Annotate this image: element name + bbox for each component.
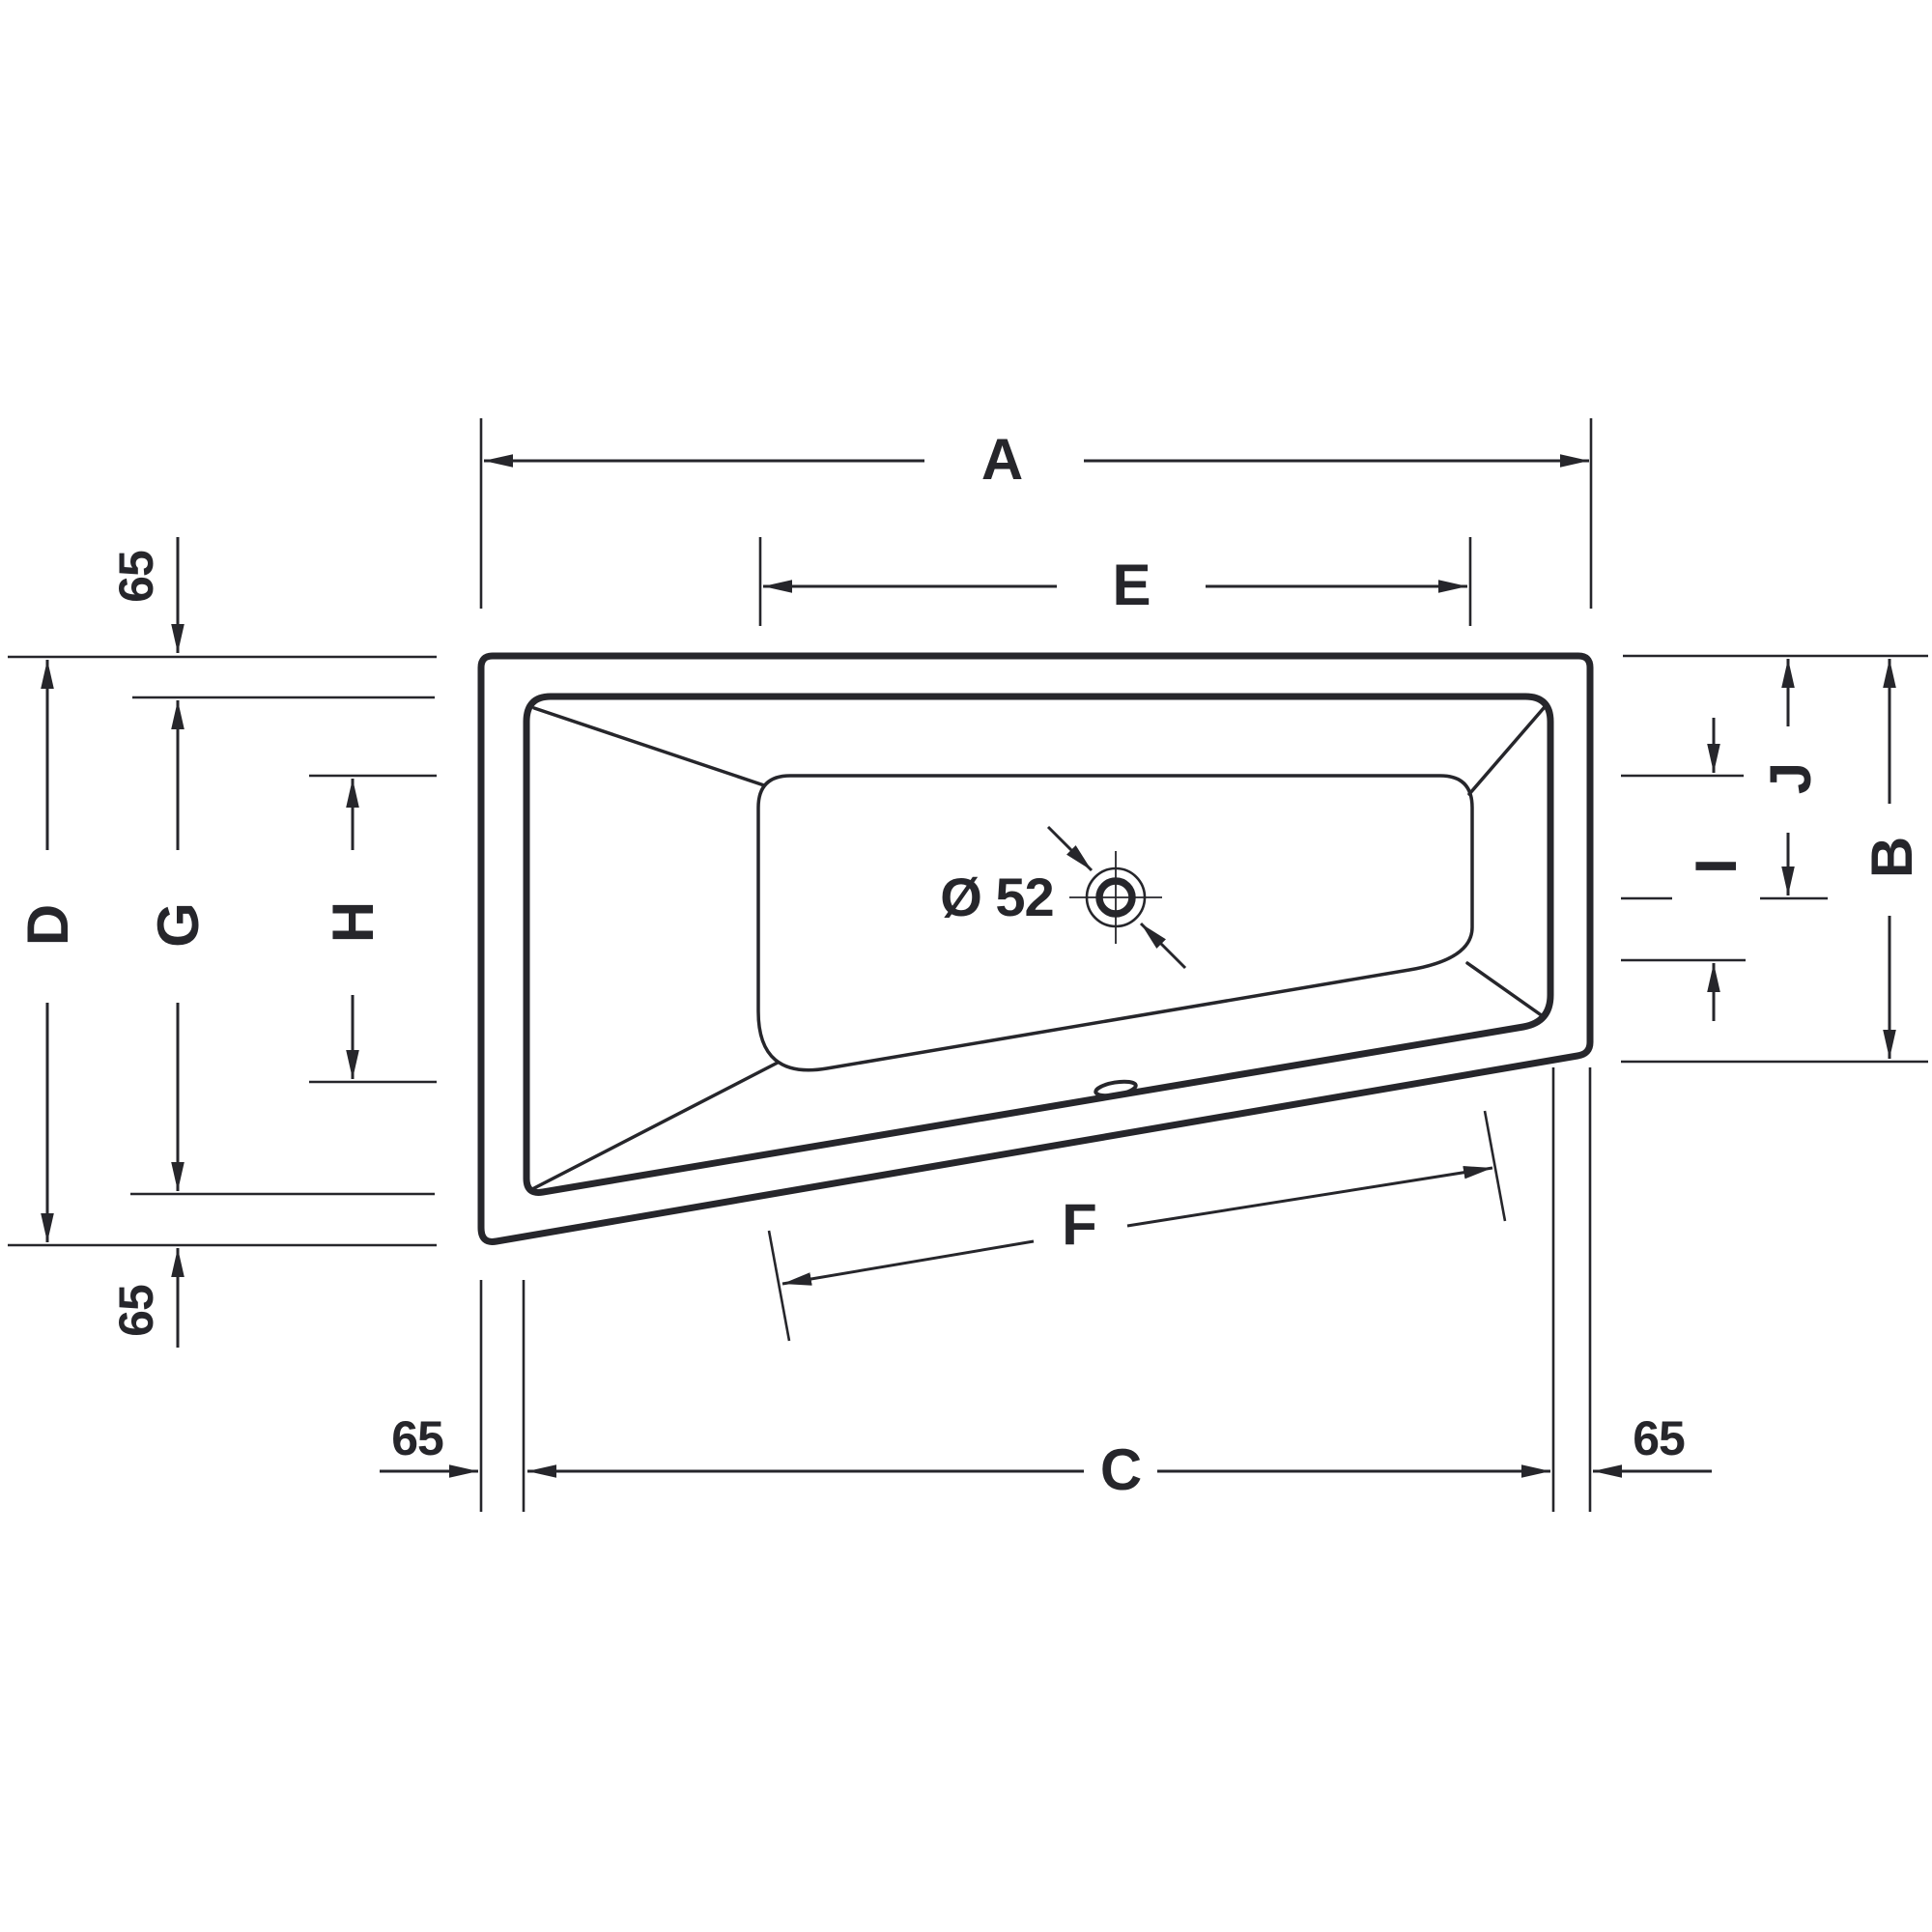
drain-group: [1048, 827, 1185, 968]
wall-diagonal-bottom-right: [1467, 963, 1543, 1016]
bathtub-dimension-svg: A E C F 65 65 Ø 52 65 65 D G H J I B: [0, 0, 1932, 1932]
label-J: J: [1758, 763, 1823, 794]
label-I: I: [1684, 859, 1748, 874]
wall-diagonal-top-right: [1469, 708, 1544, 794]
tub-outlines: [481, 656, 1590, 1241]
dimension-labels: A E C F 65 65 Ø 52 65 65 D G H J I B: [15, 427, 1924, 1502]
drain-leader-arrow-upper: [1048, 827, 1092, 870]
label-65-bottom-left-h: 65: [391, 1411, 443, 1465]
label-65-bottom-left: 65: [109, 1285, 163, 1337]
label-A: A: [981, 427, 1022, 492]
label-G: G: [146, 903, 211, 948]
label-H: H: [321, 902, 385, 943]
label-C: C: [1100, 1437, 1141, 1502]
drain-leader-arrow-lower: [1141, 923, 1185, 968]
label-65-top-left: 65: [109, 551, 163, 603]
label-drain-diameter: Ø 52: [940, 867, 1053, 927]
label-B: B: [1860, 838, 1924, 878]
label-E: E: [1112, 553, 1150, 617]
dimension-line-F: [1127, 1168, 1492, 1226]
wall-diagonal-top-left: [534, 708, 764, 785]
outer-rim-outline: [481, 656, 1590, 1241]
label-65-bottom-right-h: 65: [1633, 1411, 1685, 1465]
tick-line: [1485, 1111, 1505, 1221]
extension-lines: [8, 418, 1928, 1512]
dimension-lines: [47, 461, 1889, 1471]
label-D: D: [15, 905, 80, 946]
inner-rim-outline: [526, 696, 1550, 1192]
drawing-sheet: A E C F 65 65 Ø 52 65 65 D G H J I B: [0, 0, 1932, 1932]
dimension-line-F: [782, 1241, 1034, 1284]
label-F: F: [1062, 1192, 1096, 1257]
tick-line: [769, 1231, 789, 1341]
